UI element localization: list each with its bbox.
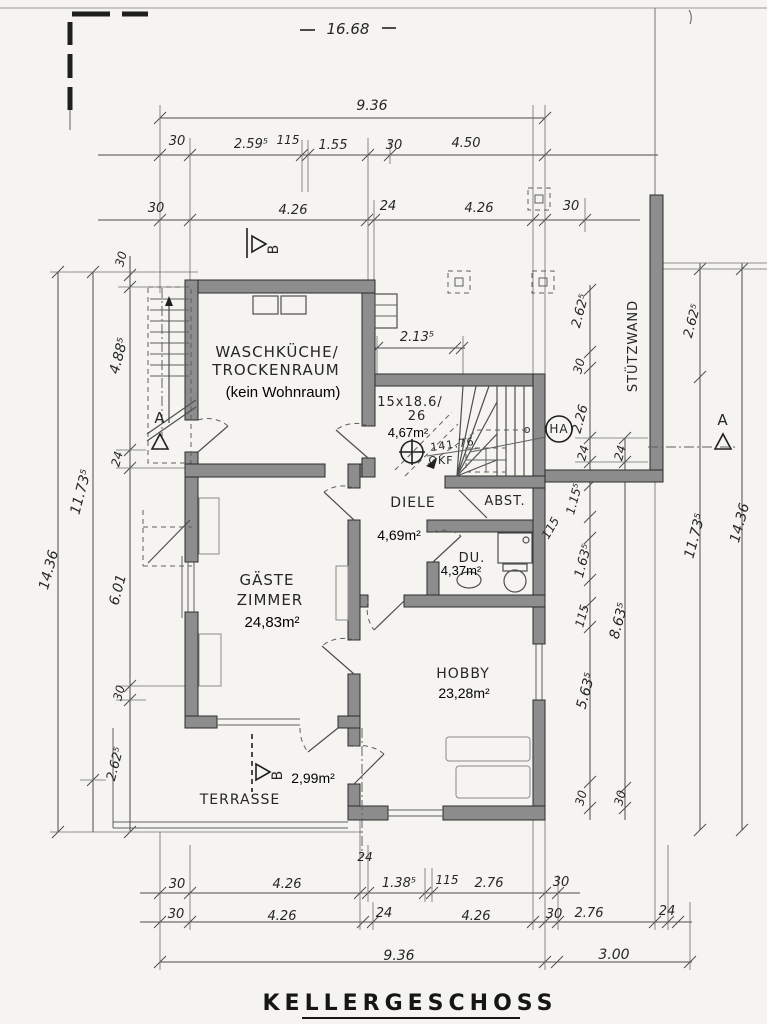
dim-line-right-outer2 [736,263,748,836]
ha-label: HA [549,422,568,436]
room-waschkueche-line1: WASCHKÜCHE/ [215,342,338,361]
dim-line-top-chain1 [98,149,658,161]
labels-layer: 16.689.36302.59⁵1151.55304.50304.26244.2… [36,20,753,1016]
dim-label: 115 [277,133,300,147]
dim-label: 30 [572,788,590,807]
dim-label: 24 [574,444,591,462]
stuetzwand-label: STÜTZWAND [624,300,641,392]
wc-bowl [504,570,526,592]
dim-label: 4.26 [273,877,302,892]
dim-label: 30 [168,907,185,922]
stair-level-value: 141.76 [430,435,476,454]
dim-overall-width: 16.68 [327,20,370,38]
dim-label: 4.26 [268,909,297,924]
terrasse-area: 2,99m² [291,770,335,786]
dim-label: 2.59⁵ [234,137,268,152]
dim-label: 14.36 [727,501,753,544]
floor-title: KELLERGESCHOSS [263,991,558,1016]
dim-label: 30 [112,249,130,268]
column-symbol [532,271,554,293]
room-waschkueche-line2: TROCKENRAUM [211,361,339,379]
room-gaeste-area: 24,83m² [244,614,299,631]
dim-line-top-chain2 [98,214,640,226]
furniture [199,634,221,686]
dim-label: 5.63⁵ [574,671,599,711]
dim-label: 4.88⁵ [107,336,132,376]
dim-label: 24 [376,906,393,921]
room-hobby-area: 23,28m² [438,685,490,701]
abst-door-leaf [459,490,487,518]
dim-label: 2.76 [475,876,504,891]
sofa [446,737,530,761]
room-waschkueche-note: (kein Wohnraum) [226,384,341,401]
furniture [199,498,219,554]
section-b-top-label: B [266,244,282,255]
room-diele-name: DIELE [390,495,435,511]
dryer [281,296,306,314]
stuetzwand-wall [650,195,663,482]
dim-label: 24 [380,199,397,214]
dim-label: 30 [386,138,403,153]
dim-label: 1.63⁵ [572,543,595,580]
dim-label: 2.26 [570,403,592,435]
dim-label: 6.01 [106,573,130,607]
dim-label: 30 [169,134,186,149]
dim-label: 4.50 [452,136,481,151]
dim-label: 2.62⁵ [681,303,704,340]
dim-line-936-top [154,112,551,124]
dim-line-bottom-chain2 [140,916,692,928]
stair-level-label: OKF [428,454,453,467]
scanned-floorplan-page: 16.689.36302.59⁵1151.55304.50304.26244.2… [0,0,767,1024]
dim-label: 4.26 [465,201,494,216]
dim-label: 24 [659,904,676,919]
dim-label: 1.38⁵ [382,876,416,891]
furniture [336,566,348,620]
dim-label: 24 [611,444,628,462]
column-symbol [528,188,550,210]
dim-label: 115 [572,603,591,629]
section-a-right-label: A [717,411,728,429]
dim-label: 30 [553,875,570,890]
dim-label: 2.62⁵ [104,746,127,783]
dim-label: 8.63⁵ [607,601,632,641]
dim-label: 30 [546,907,563,922]
chimney [375,294,397,328]
dim-label: 9.36 [356,98,387,114]
dim-label: 11.73⁵ [67,467,94,516]
section-b-bottom-label: B [270,770,286,781]
room-gaeste-line2: ZIMMER [237,591,303,609]
stair-area: 4,67m² [388,425,429,440]
corner-squiggle [689,10,691,24]
extension-lines [50,8,767,970]
room-terrasse-name: TERRASSE [199,792,280,808]
dim-label: 115 [436,873,459,887]
dim-label: 4.26 [279,203,308,218]
stair-spec-line1: 15x18.6/ [377,395,443,410]
dim-line-11735-left [87,266,99,832]
dim-label: 30 [563,199,580,214]
section-a-left-label: A [154,409,165,427]
dim-label: 30 [148,201,165,216]
dim-label: 1.15⁵ [563,482,585,516]
room-abst-name: ABST. [484,494,525,509]
floorplan-canvas: 16.689.36302.59⁵1151.55304.50304.26244.2… [0,0,767,1024]
stair-spec-line2: 26 [408,409,427,424]
room-diele-area: 4,69m² [377,527,421,543]
dim-label: 2.62⁵ [569,293,592,330]
dim-label: 1.55 [319,138,348,153]
washer [253,296,278,314]
dim-label: 24 [108,450,125,468]
dim-label: 3.00 [598,947,629,963]
dim-label: 30 [169,877,186,892]
shower-drain [523,537,529,543]
room-hobby-name: HOBBY [436,666,490,682]
dim-label: 2.13⁵ [400,330,434,345]
column-symbol [448,271,470,293]
dim-label: 2.76 [575,906,604,921]
room-gaeste-line1: GÄSTE [239,570,294,589]
section-b-top-arrow [252,236,266,252]
dim-label: 24 [357,850,372,864]
dim-label: 4.26 [462,909,491,924]
room-du-area: 4,37m² [441,563,482,578]
dim-label: 30 [611,788,629,807]
dim-label: 9.36 [383,948,414,964]
sofa [456,766,530,798]
section-b-bottom-arrow [256,764,270,780]
dim-label: 11.73⁵ [681,511,708,560]
